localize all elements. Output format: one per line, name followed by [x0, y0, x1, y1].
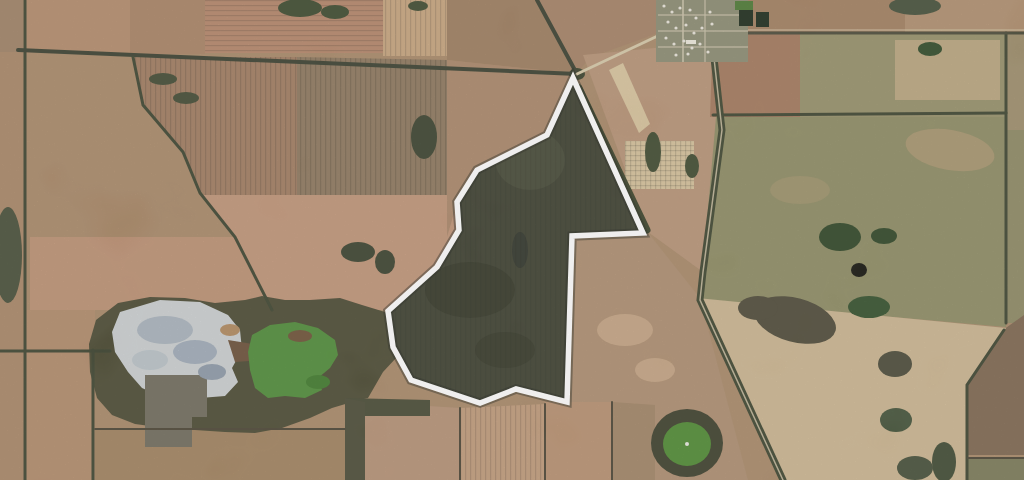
- grain-texture: [0, 0, 1024, 480]
- map-viewport[interactable]: [0, 0, 1024, 480]
- satellite-image: [0, 0, 1024, 480]
